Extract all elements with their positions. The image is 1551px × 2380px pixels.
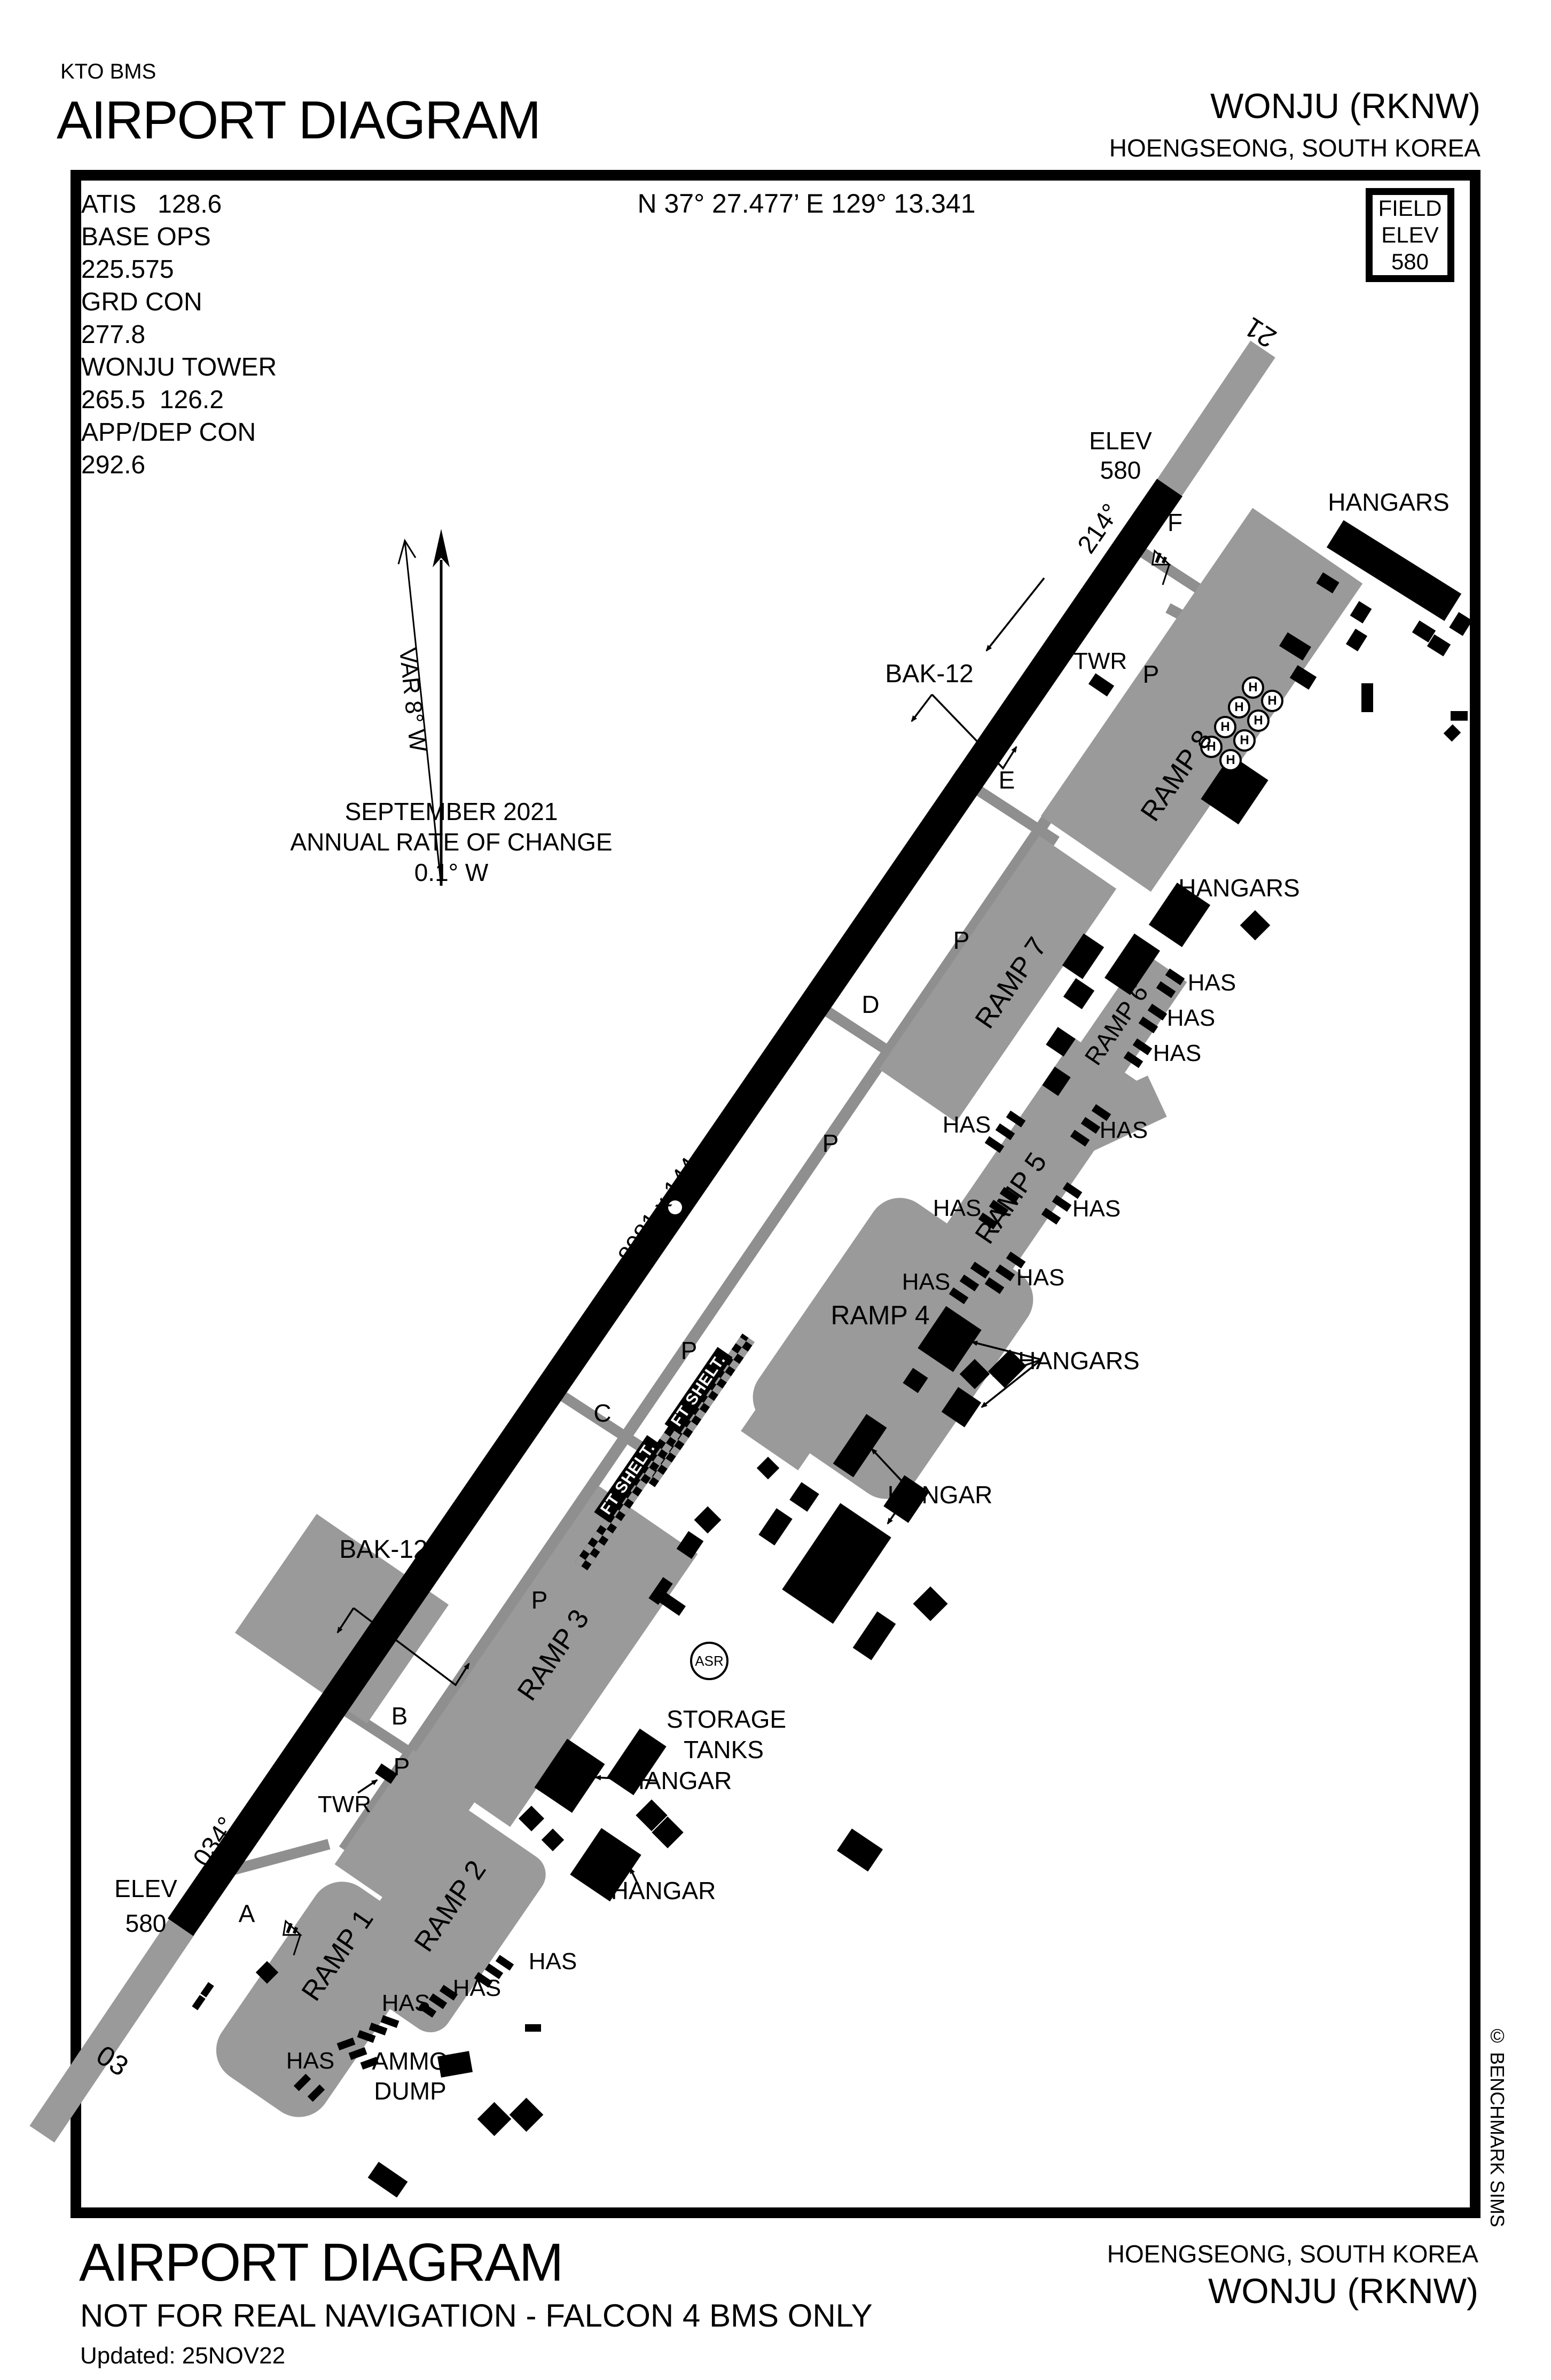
- map-label-p: P: [531, 1588, 548, 1612]
- footer-updated: Updated: 25NOV22: [80, 2343, 285, 2369]
- map-label-hangar: HANGAR: [627, 1768, 732, 1793]
- building: [519, 1806, 544, 1831]
- building: [1346, 629, 1367, 652]
- map-label-p: P: [822, 1131, 839, 1156]
- map-label-580: 580: [126, 1911, 167, 1936]
- map-label-has: HAS: [1016, 1266, 1064, 1290]
- building: [1449, 612, 1472, 636]
- map-label-tanks: TANKS: [684, 1737, 764, 1762]
- building: [789, 1482, 819, 1512]
- building: [200, 1982, 214, 1997]
- building: [694, 1507, 722, 1534]
- map-label-f: F: [1168, 510, 1182, 535]
- helipad-icon: H: [1214, 716, 1236, 738]
- building: [477, 2102, 511, 2136]
- map-label-hangars: HANGARS: [1018, 1348, 1139, 1373]
- map-label-hangars: HANGARS: [1328, 490, 1449, 514]
- building: [192, 1995, 205, 2010]
- building: [837, 1829, 883, 1872]
- footer-airport: WONJU (RKNW): [944, 2270, 1478, 2311]
- building: [1350, 601, 1372, 623]
- map-label-elev: ELEV: [114, 1876, 177, 1901]
- map-label-has: HAS: [902, 1270, 950, 1294]
- runway-overrun: [1156, 341, 1275, 497]
- map-label-has: HAS: [943, 1113, 991, 1137]
- map-label-p: P: [394, 1754, 410, 1779]
- map-label-twr: TWR: [1074, 650, 1127, 673]
- map-label-has: HAS: [1167, 1006, 1215, 1030]
- building: [1088, 673, 1114, 696]
- map-label-has: HAS: [453, 1977, 501, 2000]
- map-label-p: P: [681, 1338, 698, 1363]
- map-label-a: A: [239, 1901, 255, 1926]
- building: [509, 2097, 543, 2132]
- footer-disclaimer: NOT FOR REAL NAVIGATION - FALCON 4 BMS O…: [80, 2297, 873, 2334]
- building: [985, 1136, 1005, 1152]
- building: [496, 1955, 514, 1971]
- building: [1451, 711, 1468, 721]
- map-label-dump: DUMP: [374, 2079, 446, 2103]
- building: [913, 1586, 947, 1621]
- map-label-has: HAS: [286, 2049, 334, 2073]
- building: [542, 1829, 564, 1851]
- helipad-icon: H: [1247, 709, 1270, 732]
- map-label-ramp-4: RAMP 4: [831, 1302, 929, 1329]
- building: [757, 1457, 779, 1479]
- map-label-has: HAS: [1188, 971, 1236, 995]
- footer-city: HOENGSEONG, SOUTH KOREA: [944, 2239, 1478, 2268]
- map-label-twr: TWR: [318, 1793, 371, 1816]
- building: [1063, 978, 1094, 1009]
- building: [853, 1611, 896, 1660]
- building: [1361, 683, 1373, 712]
- building: [381, 2015, 399, 2028]
- building: [1240, 910, 1271, 941]
- airport-diagram-page: KTO BMS AIRPORT DIAGRAM WONJU (RKNW) HOE…: [0, 0, 1551, 2380]
- building: [782, 1503, 891, 1624]
- map-label-has: HAS: [1153, 1042, 1201, 1065]
- building: [525, 2024, 541, 2032]
- map-label-hangars: HANGARS: [1178, 876, 1299, 900]
- building: [368, 2161, 408, 2197]
- helipad-icon: H: [1242, 676, 1264, 699]
- copyright-note: © BENCHMARK SIMS: [1486, 2025, 1508, 2227]
- helipad-icon: H: [1219, 749, 1242, 771]
- map-label-has: HAS: [1100, 1119, 1148, 1142]
- map-label-has: HAS: [382, 1992, 430, 2015]
- building: [758, 1508, 792, 1546]
- map-label-hangar: HANGAR: [611, 1878, 716, 1903]
- map-label-ammo: AMMO: [372, 2049, 448, 2073]
- building: [1444, 724, 1461, 742]
- map-label-p: P: [1143, 662, 1160, 686]
- map-label-c: C: [593, 1401, 611, 1425]
- map-label-d: D: [861, 992, 879, 1017]
- map-label-b: B: [391, 1704, 408, 1728]
- map-label-hangar: HANGAR: [888, 1482, 993, 1507]
- map-label-p: P: [953, 928, 970, 953]
- runway-overrun: [29, 1918, 194, 2143]
- map-label-elev: ELEV: [1089, 428, 1152, 453]
- map-label-has: HAS: [1072, 1197, 1121, 1221]
- asr-radar-symbol: ASR: [690, 1642, 728, 1680]
- map-label-storage: STORAGE: [667, 1707, 786, 1731]
- map-label-bak-12: BAK-12: [339, 1537, 427, 1563]
- helipad-icon: H: [1233, 729, 1256, 752]
- map-label-has: HAS: [529, 1950, 577, 1973]
- building: [658, 1591, 686, 1616]
- map-label-has: HAS: [933, 1197, 981, 1220]
- building: [996, 1123, 1015, 1140]
- airfield-map: HHHHHHHH21038981 x 144214°034°ELEV580ELE…: [0, 0, 1551, 2380]
- helipad-icon: H: [1228, 696, 1250, 719]
- map-label-580: 580: [1100, 458, 1141, 482]
- map-label-bak-12: BAK-12: [885, 661, 973, 687]
- helipad-icon: H: [1261, 690, 1283, 712]
- map-label-e: E: [999, 768, 1015, 792]
- footer-title: AIRPORT DIAGRAM: [79, 2232, 562, 2293]
